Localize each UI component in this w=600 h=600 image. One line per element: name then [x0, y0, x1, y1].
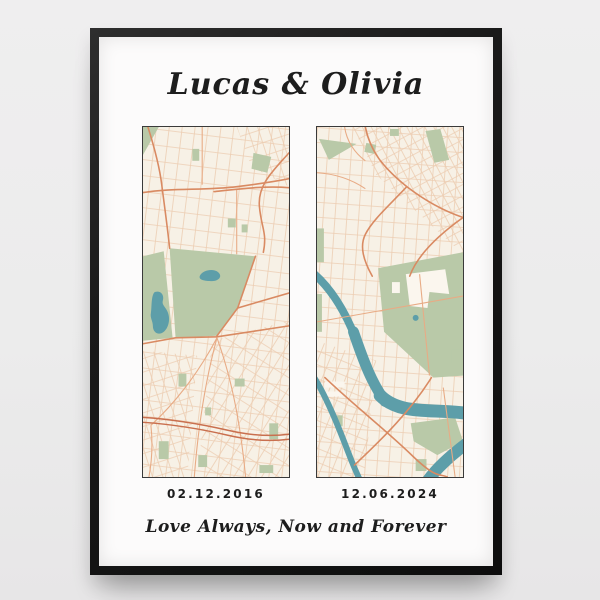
map-date-left: 02.12.2016: [142, 487, 290, 501]
maps-row: [142, 126, 464, 478]
dates-row: 02.12.2016 12.06.2024: [142, 487, 464, 501]
poster-title: Lucas & Olivia: [99, 67, 493, 102]
poster-matte: Lucas & Olivia: [99, 37, 493, 566]
map-panel-left: [142, 126, 290, 478]
picture-frame: Lucas & Olivia: [90, 28, 502, 575]
wall-background: Lucas & Olivia: [0, 0, 600, 600]
map-date-right: 12.06.2024: [316, 487, 464, 501]
street-map-left: [143, 127, 289, 477]
poster-message: Love Always, Now and Forever: [99, 517, 493, 537]
street-map-right: [317, 127, 463, 477]
map-panel-right: [316, 126, 464, 478]
